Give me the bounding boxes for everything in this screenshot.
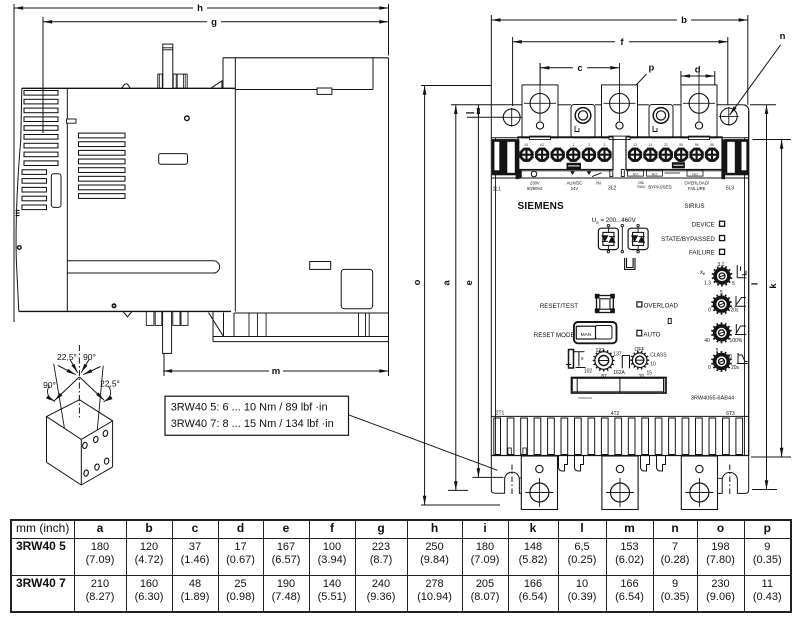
- svg-text:3: 3: [604, 143, 606, 147]
- svg-text:CLASS: CLASS: [650, 353, 667, 359]
- svg-text:5: 5: [716, 348, 719, 354]
- svg-text:o: o: [412, 279, 423, 285]
- svg-text:IN: IN: [596, 181, 601, 186]
- svg-text:96: 96: [695, 143, 699, 147]
- svg-text:k: k: [768, 283, 779, 289]
- svg-text:10: 10: [650, 362, 656, 368]
- svg-text:Ue = 200...460V: Ue = 200...460V: [592, 217, 637, 225]
- svg-text:BYPASSED: BYPASSED: [648, 184, 671, 189]
- svg-text:AUX/DC: AUX/DC: [567, 180, 583, 185]
- svg-text:OFF: OFF: [635, 347, 645, 353]
- svg-text:NSB00459: NSB00459: [578, 396, 593, 400]
- svg-text:0: 0: [708, 307, 711, 313]
- svg-text:22,5°: 22,5°: [100, 379, 120, 389]
- svg-text:20s: 20s: [731, 365, 740, 371]
- svg-text:RESET/TEST: RESET/TEST: [540, 303, 578, 310]
- svg-text:5: 5: [732, 281, 735, 287]
- svg-text:d: d: [695, 65, 701, 76]
- svg-text:3.1: 3.1: [718, 262, 725, 268]
- svg-text:1L1: 1L1: [493, 187, 502, 193]
- svg-text:23: 23: [664, 143, 668, 147]
- svg-text:g: g: [211, 17, 217, 28]
- svg-text:98: 98: [710, 143, 714, 147]
- svg-text:9: 9: [581, 356, 584, 361]
- svg-text:5L3: 5L3: [726, 185, 735, 191]
- svg-text:SIRIUS: SIRIUS: [684, 204, 704, 210]
- svg-text:3RW40 7: 8 ... 15 Nm / 134 lb: 3RW40 7: 8 ... 15 Nm / 134 lbf ·in: [171, 418, 334, 430]
- svg-text:122: 122: [596, 348, 605, 354]
- svg-text:10: 10: [727, 354, 733, 360]
- svg-text:14: 14: [649, 143, 653, 147]
- svg-text:A2: A2: [540, 143, 544, 147]
- svg-text:3L2: 3L2: [608, 185, 617, 191]
- svg-text:MAN: MAN: [581, 332, 592, 338]
- svg-text:24V: 24V: [571, 186, 579, 191]
- svg-text:NO: NO: [633, 172, 639, 176]
- svg-text:22,5°: 22,5°: [57, 352, 77, 362]
- svg-text:5: 5: [720, 290, 723, 296]
- svg-text:230V: 230V: [530, 180, 540, 185]
- svg-text:h: h: [197, 3, 203, 14]
- svg-text:A1: A1: [524, 143, 528, 147]
- svg-text:c: c: [577, 63, 582, 74]
- svg-text:102: 102: [584, 368, 593, 374]
- svg-text:SIEMENS: SIEMENS: [518, 201, 565, 212]
- svg-text:DEVICE: DEVICE: [692, 222, 715, 229]
- svg-text:AUTO: AUTO: [643, 331, 660, 338]
- svg-text:0: 0: [708, 365, 711, 371]
- svg-text:OVERLOAD/: OVERLOAD/: [684, 180, 709, 185]
- svg-text:15: 15: [647, 371, 653, 377]
- svg-text:FAILURE: FAILURE: [688, 186, 706, 191]
- svg-text:n: n: [780, 31, 786, 42]
- svg-text:13: 13: [633, 143, 637, 147]
- svg-text:4T2: 4T2: [611, 411, 620, 417]
- svg-text:50/60Hz: 50/60Hz: [527, 186, 543, 191]
- svg-text:90°: 90°: [83, 352, 96, 362]
- svg-text:b: b: [681, 15, 687, 26]
- svg-text:NO: NO: [652, 172, 658, 176]
- svg-text:162A: 162A: [613, 370, 625, 376]
- svg-text:6T3: 6T3: [726, 411, 735, 417]
- svg-text:p: p: [649, 63, 655, 74]
- svg-text:2T1: 2T1: [496, 411, 505, 417]
- svg-text:NO: NO: [692, 172, 698, 176]
- svg-text:40: 40: [704, 338, 710, 344]
- svg-text:3RW40 5: 6 ... 10 Nm / 89 lbf: 3RW40 5: 6 ... 10 Nm / 89 lbf ·in: [171, 402, 328, 414]
- svg-text:RESET MODE: RESET MODE: [534, 332, 575, 339]
- svg-text:xe: xe: [700, 270, 706, 276]
- svg-text:3RW4055-6AB44: 3RW4055-6AB44: [691, 395, 734, 401]
- svg-text:OVERLOAD: OVERLOAD: [644, 303, 679, 310]
- svg-text:2: 2: [588, 143, 590, 147]
- svg-text:1.3: 1.3: [704, 280, 711, 286]
- svg-text:RUN: RUN: [637, 185, 645, 189]
- svg-text:95: 95: [679, 143, 683, 147]
- svg-text:137: 137: [613, 351, 622, 357]
- svg-text:a: a: [442, 279, 453, 285]
- svg-text:m: m: [272, 366, 280, 377]
- svg-text:STATE/BYPASSED: STATE/BYPASSED: [661, 236, 715, 243]
- svg-text:1: 1: [572, 143, 574, 147]
- svg-text:20s: 20s: [731, 308, 740, 314]
- svg-text:e: e: [464, 280, 475, 285]
- svg-text:90°: 90°: [43, 380, 56, 390]
- svg-text:100%: 100%: [730, 338, 743, 344]
- svg-text:FAILURE: FAILURE: [689, 250, 715, 257]
